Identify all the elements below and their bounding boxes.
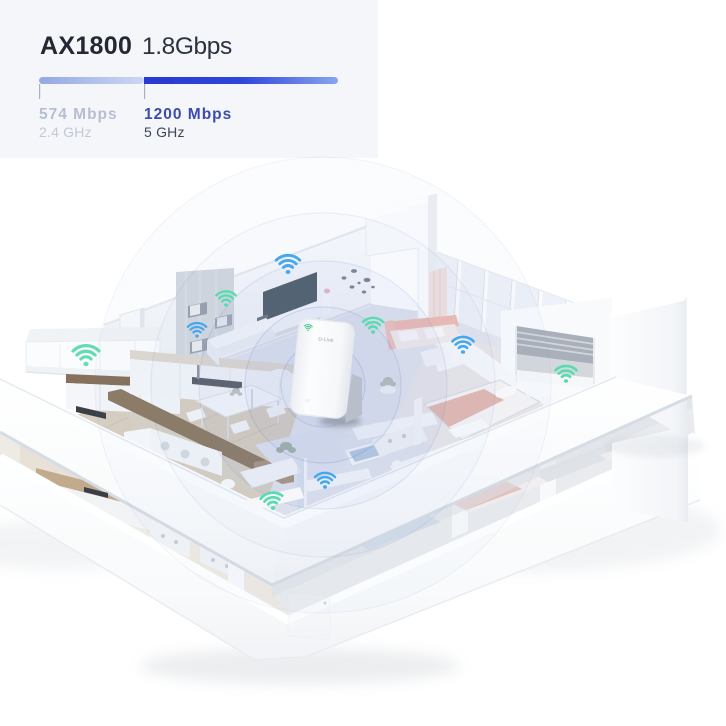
svg-text:1.8Gbps: 1.8Gbps (142, 33, 232, 60)
svg-text:AX1800: AX1800 (40, 32, 132, 60)
svg-text:1200 Mbps: 1200 Mbps (144, 106, 232, 123)
svg-text:574 Mbps: 574 Mbps (39, 106, 118, 123)
svg-text:2.4 GHz: 2.4 GHz (39, 124, 92, 140)
svg-text:5 GHz: 5 GHz (144, 124, 185, 140)
